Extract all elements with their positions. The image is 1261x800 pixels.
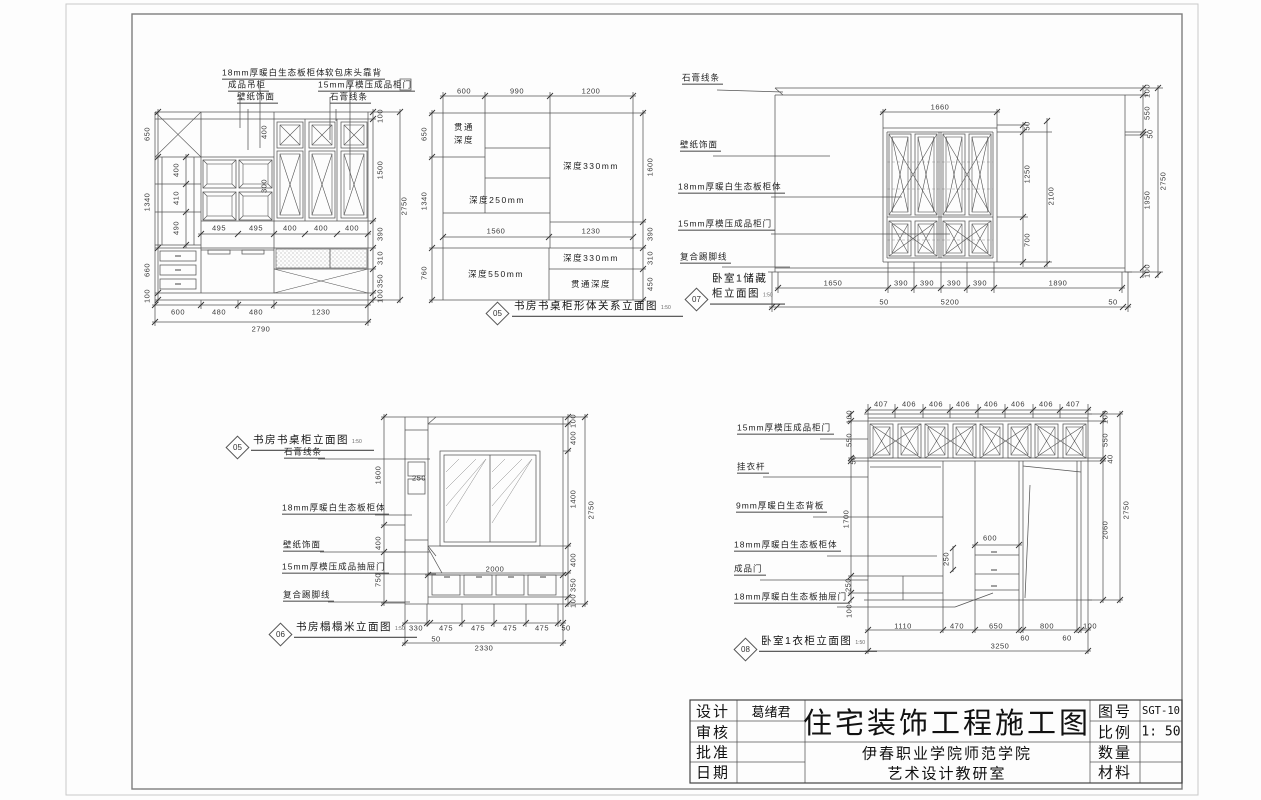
dim-label: 100 <box>845 410 854 424</box>
annotation-label: 壁纸饰面 <box>283 541 324 552</box>
title-scale-note: 1:50 <box>763 293 773 299</box>
title-scale-note: 1:50 <box>395 626 405 632</box>
dim-label: 300 <box>260 179 269 193</box>
dim-label: 100 <box>376 109 385 123</box>
dim-label: 400 <box>569 431 578 445</box>
annotation-label: 复合踢脚线 <box>680 253 731 264</box>
drawing-title: 书房榻榻米立面图1:50 <box>294 620 417 638</box>
dim-label: 2750 <box>1159 172 1168 191</box>
dim-label: 550 <box>845 433 854 447</box>
dim-label: 650 <box>989 622 1003 631</box>
dim-label: 750 <box>374 573 383 587</box>
dim-label: 495 <box>212 224 226 233</box>
dim-label: 100 <box>143 289 152 303</box>
dim-label: 390 <box>376 227 385 241</box>
drawing-title: 卧室1衣柜立面图1:50 <box>759 634 877 652</box>
dim-label: 40 <box>1106 454 1115 463</box>
dim-label: 1890 <box>1049 279 1068 288</box>
dim-label: 250 <box>412 474 426 483</box>
dim-label: 50 <box>1146 129 1155 138</box>
dim-label: 760 <box>420 266 429 280</box>
titleblock-label-approve: 批准 <box>696 742 730 763</box>
callout-diamond: 05 <box>225 435 249 459</box>
titleblock-value-scale: 1: 50 <box>1141 725 1180 740</box>
dim-label: 60 <box>1062 634 1071 643</box>
dim-label: 1500 <box>376 161 385 180</box>
dim-label: 2060 <box>1101 521 1110 540</box>
dim-label: 406 <box>1039 400 1053 409</box>
dim-label: 100 <box>1101 410 1110 424</box>
depth-note: 深度 <box>454 134 474 146</box>
dim-label: 250 <box>942 552 951 566</box>
dim-label: 310 <box>646 251 655 265</box>
callout-diamond: 07 <box>684 287 708 311</box>
dim-label: 1340 <box>420 192 429 211</box>
depth-note: 深度330mm <box>563 160 619 172</box>
dim-label: 400 <box>314 224 328 233</box>
dim-label: 310 <box>376 251 385 265</box>
dim-label: 400 <box>569 553 578 567</box>
dim-label: 990 <box>510 87 524 96</box>
dim-label: 1200 <box>582 87 601 96</box>
annotation-label: 15mm厚模压成品柜门 <box>737 424 834 435</box>
sheet-main-title: 住宅装饰工程施工图 <box>803 700 1091 742</box>
dim-label: 1700 <box>842 510 851 529</box>
dim-label: 550 <box>1143 106 1152 120</box>
annotation-label: 9mm厚暖白生态背板 <box>736 502 827 513</box>
annotation-label: 18mm厚暖白生态板柜体 <box>734 541 841 552</box>
dim-label: 2000 <box>486 565 505 574</box>
title-scale-note: 1:50 <box>661 305 671 311</box>
org-name-line1: 伊春职业学院师范学院 <box>862 743 1032 764</box>
callout-number: 06 <box>273 627 288 642</box>
titleblock-label-date: 日期 <box>696 762 730 783</box>
dim-label: 650 <box>143 127 152 141</box>
annotation-label: 成品吊柜 <box>228 81 269 92</box>
callout-number: 07 <box>689 292 704 307</box>
dim-label: 1230 <box>582 227 601 236</box>
dim-label: 250 <box>844 578 853 592</box>
dim-label: 480 <box>249 308 263 317</box>
dim-label: 400 <box>260 125 269 139</box>
dim-label: 50 <box>431 635 440 644</box>
dim-label: 1340 <box>143 193 152 212</box>
dim-label: 400 <box>283 224 297 233</box>
dim-label: 475 <box>503 624 517 633</box>
dim-label: 2750 <box>400 197 409 216</box>
dim-label: 390 <box>646 227 655 241</box>
titleblock-label-design: 设计 <box>696 701 730 722</box>
annotation-label: 成品门 <box>734 565 766 576</box>
drawing-title: 卧室1储藏柜立面图1:50 <box>710 272 785 305</box>
titleblock-value-designer: 葛绪君 <box>751 702 790 721</box>
dim-label: 100 <box>1143 264 1152 278</box>
dim-label: 400 <box>345 224 359 233</box>
cad-sheet: { "title_block": { "left_rows": [ {"labe… <box>0 0 1261 800</box>
dim-label: 406 <box>956 400 970 409</box>
dim-label: 100 <box>376 289 385 303</box>
depth-note: 深度330mm <box>563 252 619 264</box>
dim-label: 100 <box>1143 84 1152 98</box>
dim-label: 390 <box>947 279 961 288</box>
dim-label: 400 <box>172 163 181 177</box>
dim-label: 700 <box>1023 233 1032 247</box>
dim-label: 1250 <box>1023 165 1032 184</box>
dim-label: 1650 <box>824 279 843 288</box>
titleblock-label-material: 材料 <box>1098 762 1132 783</box>
dim-label: 390 <box>920 279 934 288</box>
dim-label: 1660 <box>931 103 950 112</box>
dim-label: 800 <box>1040 622 1054 631</box>
titleblock-label-quantity: 数量 <box>1098 742 1132 763</box>
dim-label: 406 <box>984 400 998 409</box>
dim-label: 490 <box>172 221 181 235</box>
dim-label: 1560 <box>487 227 506 236</box>
dim-label: 50 <box>1108 298 1117 307</box>
annotation-label: 15mm厚模压成品柜门 <box>318 81 415 92</box>
dim-label: 2750 <box>587 501 596 520</box>
callout-number: 05 <box>490 306 505 321</box>
dim-label: 390 <box>973 279 987 288</box>
dim-label: 600 <box>171 308 185 317</box>
dim-label: 350 <box>376 274 385 288</box>
dim-label: 406 <box>902 400 916 409</box>
dim-label: 550 <box>1101 433 1110 447</box>
dim-label: 50 <box>849 455 858 464</box>
drawing-title: 书房书桌柜形体关系立面图1:50 <box>512 299 683 317</box>
dim-label: 600 <box>983 534 997 543</box>
dim-label: 475 <box>535 624 549 633</box>
dim-label: 400 <box>374 536 383 550</box>
callout-number: 05 <box>230 440 245 455</box>
annotation-label: 石膏线条 <box>330 93 371 104</box>
dim-label: 1950 <box>1143 191 1152 210</box>
dim-label: 495 <box>249 224 263 233</box>
dim-label: 3250 <box>991 642 1010 651</box>
dim-label: 407 <box>1066 400 1080 409</box>
dim-label: 390 <box>894 279 908 288</box>
dim-label: 650 <box>420 127 429 141</box>
dim-label: 1110 <box>894 622 912 631</box>
dim-label: 2790 <box>252 325 271 334</box>
dim-label: 475 <box>471 624 485 633</box>
dim-label: 2330 <box>475 644 494 653</box>
dim-label: 60 <box>1020 634 1029 643</box>
dim-label: 100 <box>1083 622 1097 631</box>
dim-label: 2100 <box>1047 187 1056 206</box>
annotation-label: 壁纸饰面 <box>680 141 721 152</box>
titleblock-label-scale: 比例 <box>1098 722 1132 743</box>
titleblock-label-sheetno: 图号 <box>1098 701 1132 722</box>
dim-label: 5200 <box>941 298 960 307</box>
title-scale-note: 1:50 <box>855 640 865 646</box>
annotation-label: 软包床头靠背 <box>325 69 385 80</box>
dim-label: 600 <box>457 87 471 96</box>
dim-label: 1600 <box>374 466 383 485</box>
dim-label: 350 <box>569 578 578 592</box>
dim-label: 406 <box>1011 400 1025 409</box>
drawing-title: 书房书桌柜立面图1:50 <box>251 433 374 451</box>
dim-label: 450 <box>646 277 655 291</box>
dim-label: 2750 <box>1122 501 1131 520</box>
dim-label: 1230 <box>312 308 331 317</box>
dim-label: 100 <box>845 604 854 618</box>
dim-label: 470 <box>950 622 964 631</box>
annotation-layer: 18mm厚暖白生态板柜体软包床头靠背成品吊柜15mm厚模压成品柜门壁纸饰面石膏线… <box>0 0 1261 800</box>
dim-label: 480 <box>212 308 226 317</box>
depth-note: 贯通 <box>454 121 474 133</box>
dim-label: 100 <box>569 414 578 428</box>
depth-note: 贯通深度 <box>571 278 611 290</box>
annotation-label: 石膏线条 <box>682 74 723 85</box>
annotation-label: 18mm厚暖白生态板柜体 <box>222 69 329 80</box>
dim-label: 406 <box>929 400 943 409</box>
dim-label: 100 <box>569 594 578 608</box>
titleblock-value-sheetno: SGT-10 <box>1142 705 1180 717</box>
dim-label: 475 <box>439 624 453 633</box>
dim-label: 1600 <box>646 158 655 177</box>
annotation-label: 18mm厚暖白生态板柜体 <box>678 183 785 194</box>
titleblock-label-review: 审核 <box>696 722 730 743</box>
annotation-label: 壁纸饰面 <box>237 93 278 104</box>
title-scale-note: 1:50 <box>352 439 362 445</box>
callout-number: 08 <box>738 642 753 657</box>
annotation-label: 挂衣杆 <box>737 463 769 474</box>
callout-diamond: 08 <box>733 637 757 661</box>
depth-note: 深度550mm <box>468 268 524 280</box>
depth-note: 深度250mm <box>469 194 525 206</box>
annotation-label: 复合踢脚线 <box>283 591 334 602</box>
callout-diamond: 05 <box>485 301 509 325</box>
dim-label: 410 <box>172 191 181 205</box>
dim-label: 407 <box>874 400 888 409</box>
annotation-label: 18mm厚暖白生态板柜体 <box>282 504 389 515</box>
org-name-line2: 艺术设计教研室 <box>887 763 1006 784</box>
dim-label: 660 <box>143 263 152 277</box>
annotation-label: 15mm厚模压成品柜门 <box>678 220 775 231</box>
dim-label: 50 <box>1023 121 1032 130</box>
annotation-label: 18mm厚暖白生态板抽屉门 <box>734 593 850 604</box>
dim-label: 50 <box>879 298 888 307</box>
dim-label: 50 <box>561 624 570 633</box>
dim-label: 1400 <box>569 490 578 509</box>
callout-diamond: 06 <box>268 622 292 646</box>
